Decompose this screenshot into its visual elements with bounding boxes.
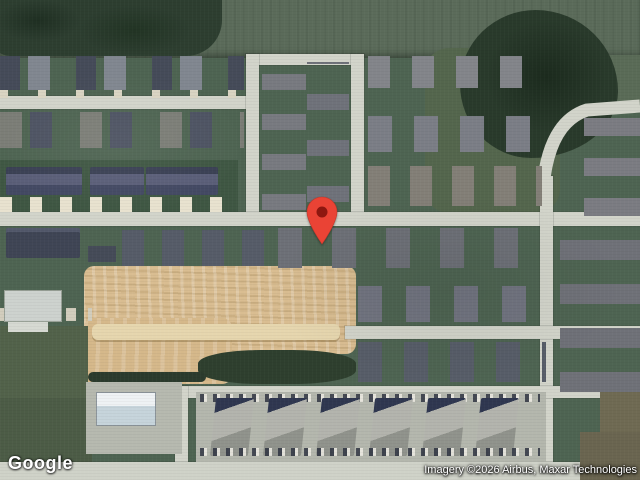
house-row (0, 112, 244, 148)
construction-track (92, 324, 340, 340)
house-column (307, 62, 349, 210)
house-row (368, 116, 542, 152)
tree-line (88, 372, 206, 382)
house-row (358, 286, 546, 322)
apartment-building (90, 167, 144, 195)
outbuilding (8, 322, 48, 332)
house-row (368, 56, 542, 88)
garage-row (0, 197, 238, 212)
road-vertical-center (351, 54, 364, 225)
house-column (560, 228, 640, 392)
house-column (262, 62, 306, 210)
apartment-building (6, 167, 82, 195)
house-row (358, 342, 546, 382)
apartment-building (6, 228, 80, 258)
road-vertical-west (246, 54, 259, 225)
tree-cluster-bottom (198, 350, 356, 384)
outbuilding (88, 246, 116, 262)
map-pin-icon[interactable] (305, 196, 339, 246)
house-column (584, 112, 640, 216)
map-pin-body[interactable] (307, 197, 337, 244)
warehouse-building (4, 290, 62, 322)
apartment-building (146, 167, 218, 195)
map-pin-dot (317, 207, 328, 218)
commercial-building (96, 392, 156, 426)
parked-cars-row (200, 448, 540, 456)
house-row (122, 230, 270, 266)
map-attribution: Imagery ©2026 Airbus, Maxar Technologies (424, 464, 637, 476)
house-row (0, 56, 244, 90)
tree-cluster-top-left (0, 0, 222, 56)
map-canvas[interactable]: Google Imagery ©2026 Airbus, Maxar Techn… (0, 0, 640, 480)
house-row (368, 166, 542, 206)
google-logo[interactable]: Google (8, 453, 73, 474)
